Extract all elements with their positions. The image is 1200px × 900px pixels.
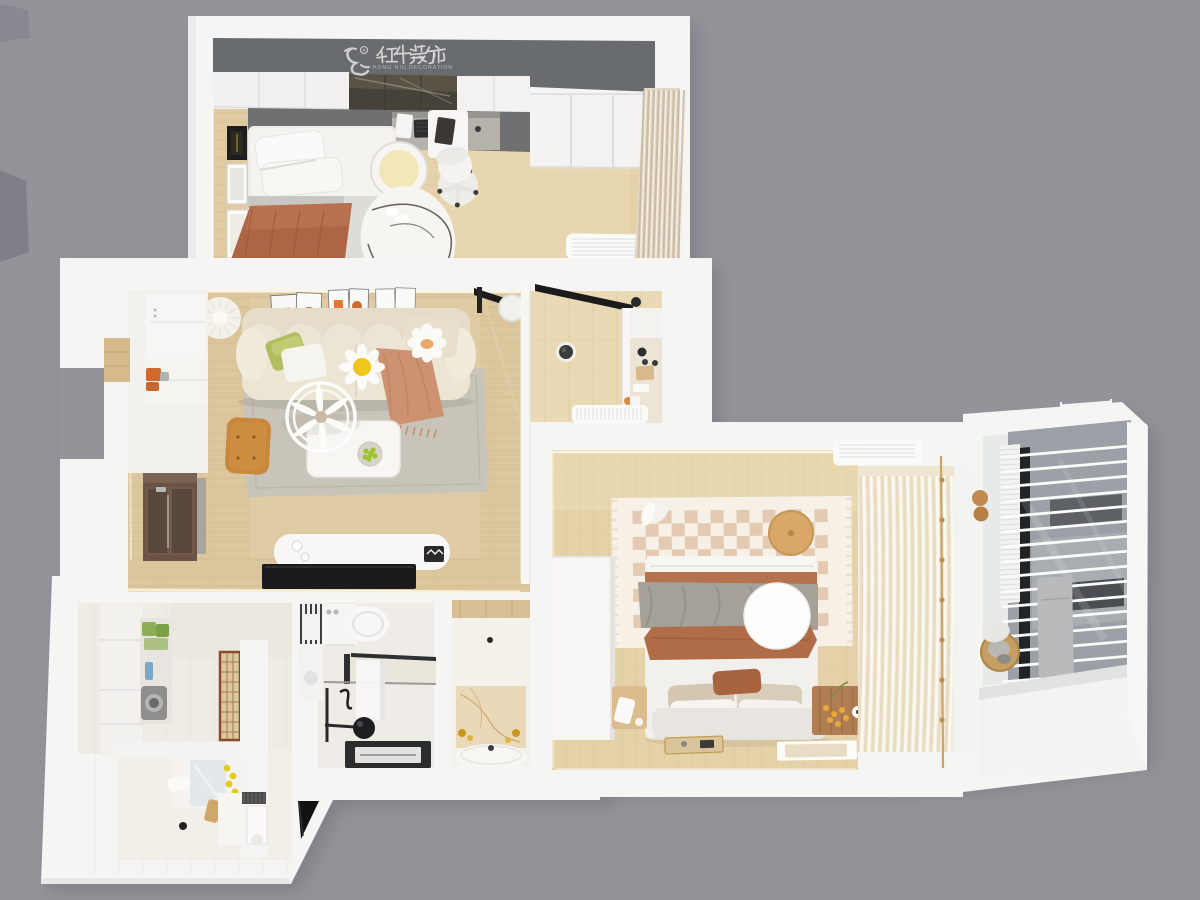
svg-text:HONG NIU DECORATION: HONG NIU DECORATION <box>373 65 453 71</box>
svg-text:R: R <box>362 48 365 53</box>
